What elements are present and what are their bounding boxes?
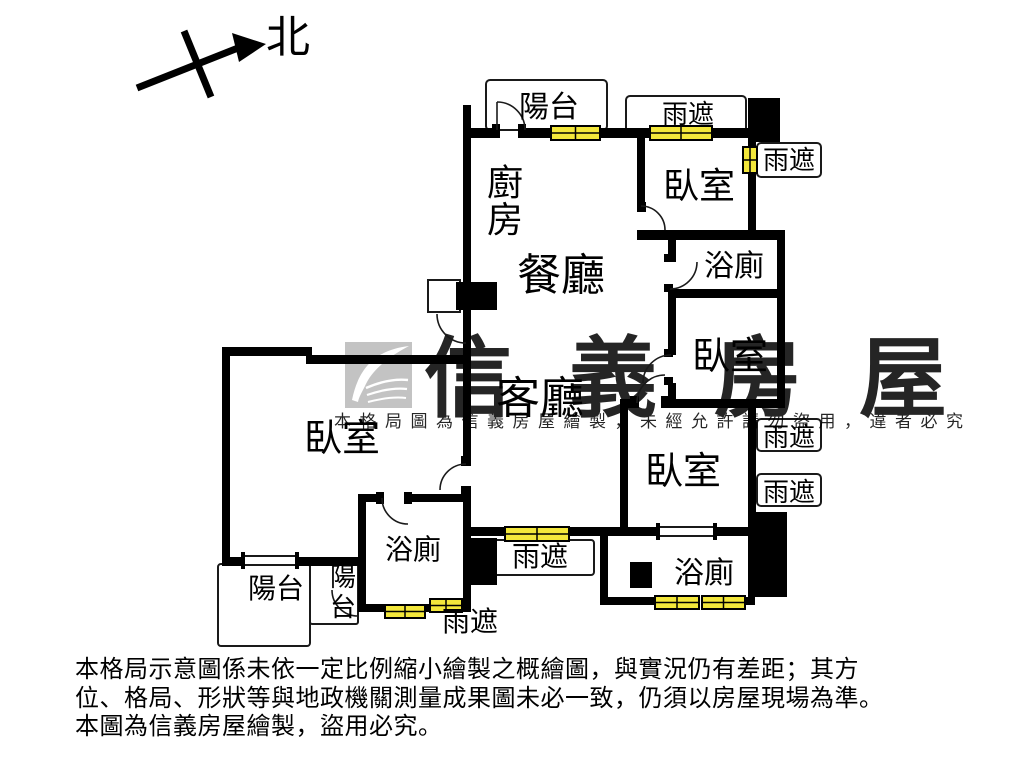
shaft-outline bbox=[428, 280, 460, 312]
bedroom3-label: 臥室 bbox=[645, 451, 721, 493]
disclaimer-line-3: 本圖為信義房屋繪製，盜用必究。 bbox=[75, 713, 985, 742]
bedroom2-label: 臥室 bbox=[692, 336, 768, 378]
window-bath-middle bbox=[385, 605, 425, 618]
balcony-top-label: 陽台 bbox=[519, 91, 579, 124]
window-bath2-b bbox=[702, 596, 745, 609]
window-kitchen bbox=[551, 126, 600, 140]
compass-arrowhead bbox=[232, 33, 266, 62]
column-top-right bbox=[748, 98, 780, 142]
bedroom1-label: 臥室 bbox=[663, 166, 735, 206]
duct-block bbox=[630, 562, 652, 588]
column-bottom-left bbox=[467, 538, 497, 585]
window-bedroom3-bottom bbox=[656, 523, 717, 540]
column-shaft bbox=[456, 282, 497, 310]
canopy-right-1-label: 雨遮 bbox=[763, 423, 815, 452]
disclaimer-line-1: 本格局示意圖係未依一定比例縮小繪製之概繪圖，與實況仍有差距；其方 bbox=[75, 656, 985, 685]
canopy-right-top-label: 雨遮 bbox=[763, 146, 815, 175]
column-bottom-right bbox=[748, 512, 787, 597]
living-room-label: 客廳 bbox=[496, 374, 584, 423]
bath1-label: 浴廁 bbox=[704, 250, 764, 283]
bedroom-left-label: 臥室 bbox=[304, 418, 380, 460]
bath-middle-label: 浴廁 bbox=[385, 534, 441, 566]
canopy-top-label: 雨遮 bbox=[662, 100, 714, 129]
dining-label: 餐廳 bbox=[517, 251, 605, 300]
bath1-door bbox=[670, 262, 697, 289]
disclaimer-line-2: 位、格局、形狀等與地政機關測量成果圖未必一致，仍須以房屋現場為準。 bbox=[75, 685, 985, 714]
floor-plan-page: 信義房屋 本格局圖為信義房屋繪製，未經允許請勿盜用，違者必究 bbox=[0, 0, 1024, 768]
disclaimer: 本格局示意圖係未依一定比例縮小繪製之概繪圖，與實況仍有差距；其方 位、格局、形狀… bbox=[75, 656, 985, 742]
watermark-notice-text: 本格局圖為信義房屋繪製，未經允許請勿盜用，違者必究 bbox=[334, 412, 972, 431]
window-bedroom-left bbox=[241, 552, 299, 569]
canopy-bottom-left-label: 雨遮 bbox=[442, 606, 498, 638]
canopy-bottom-label: 雨遮 bbox=[512, 541, 568, 573]
window-bedroom1-side bbox=[743, 147, 757, 173]
north-label: 北 bbox=[266, 13, 310, 62]
window-bath2-a bbox=[655, 596, 699, 609]
bath2-label: 浴廁 bbox=[674, 557, 734, 590]
balcony-strip-label: 陽台 bbox=[330, 563, 356, 622]
compass: 北 bbox=[137, 13, 310, 97]
canopy-right-2-label: 雨遮 bbox=[763, 478, 815, 507]
floor-plan-drawing: 信義房屋 本格局圖為信義房屋繪製，未經允許請勿盜用，違者必究 bbox=[0, 0, 1024, 768]
window-living bbox=[505, 527, 569, 541]
balcony-bottom-label: 陽台 bbox=[248, 573, 304, 605]
kitchen-label: 廚房 bbox=[487, 163, 523, 240]
